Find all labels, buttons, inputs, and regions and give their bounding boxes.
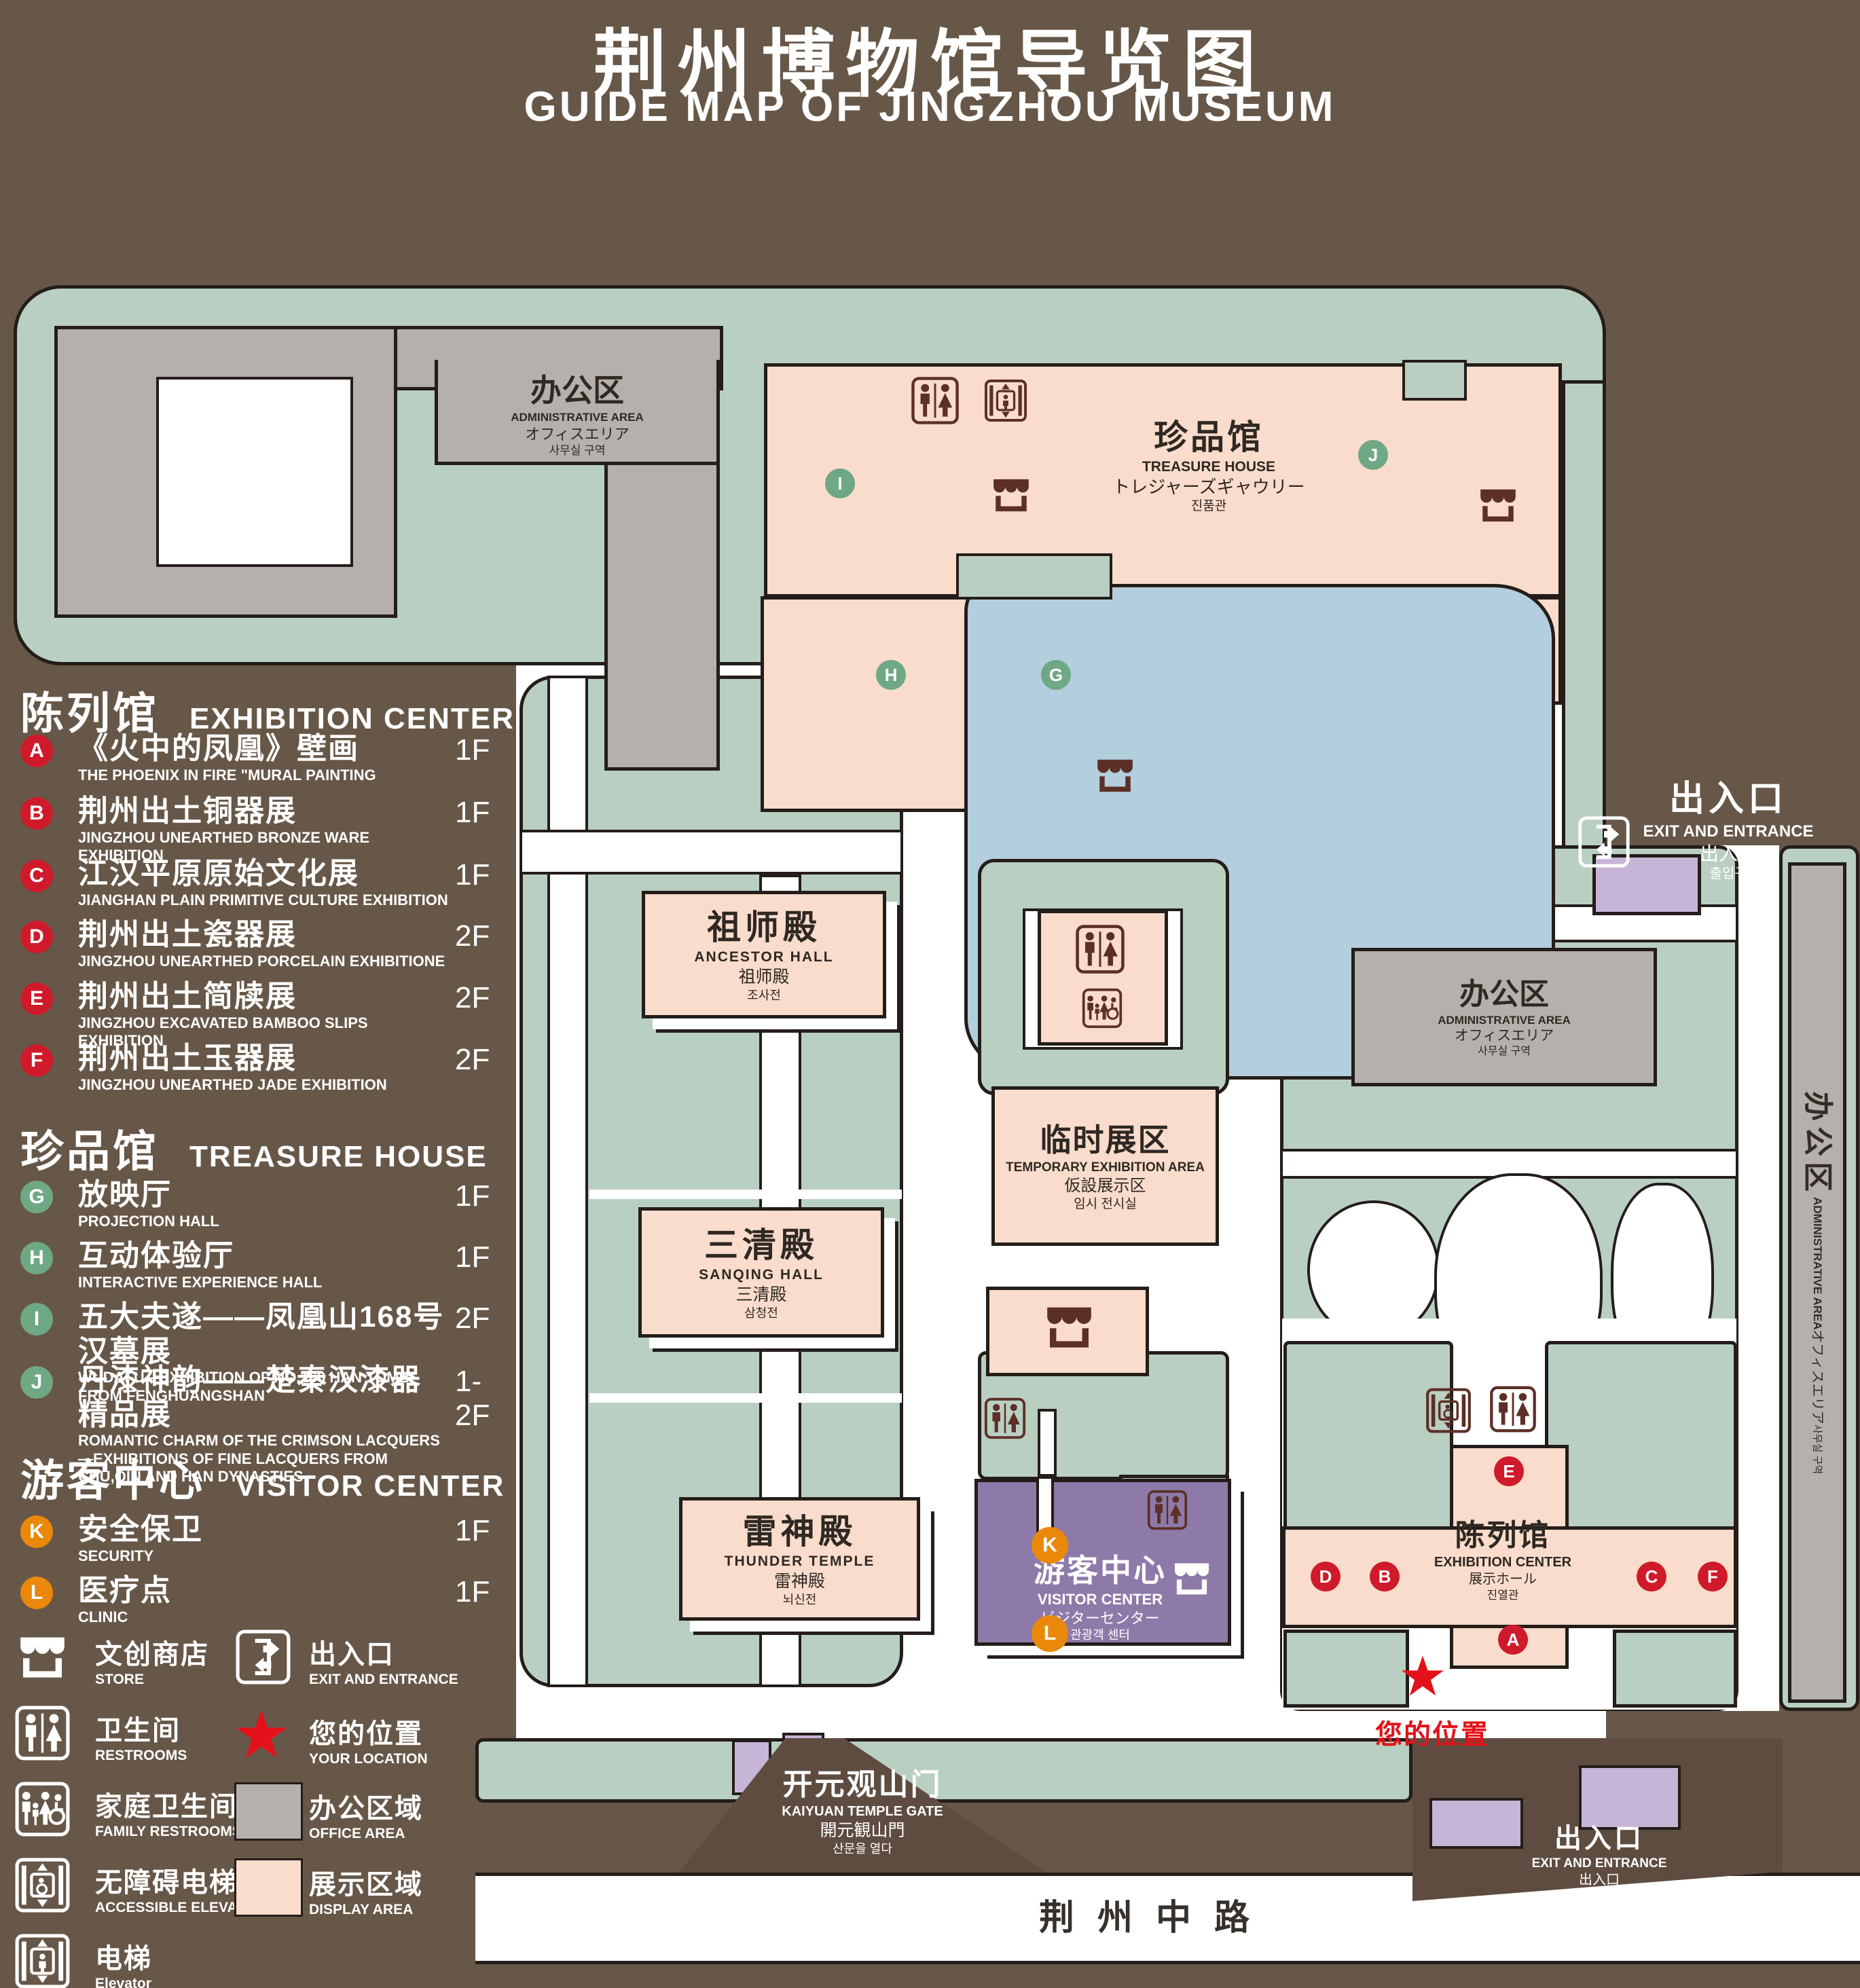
map-marker-C: C xyxy=(1637,1562,1666,1591)
map-marker-I: I xyxy=(825,468,855,498)
legend-icon-accessible-elevator: 无障碍电梯ACCESSIBLE ELEVATOR xyxy=(14,1856,71,1914)
building-thunder-temple: 雷神殿 THUNDER TEMPLE 雷神殿 뇌신전 xyxy=(679,1497,920,1621)
label-exhibition-center: 陈列馆 EXHIBITION CENTER 展示ホール 진열관 xyxy=(1391,1494,1615,1626)
map-marker-A: A xyxy=(1498,1625,1528,1655)
legend-section-treasure-house: 珍品馆 TREASURE HOUSE xyxy=(20,1117,488,1179)
exit-icon xyxy=(234,1628,292,1686)
green-block-exh-se xyxy=(1613,1630,1737,1708)
guide-map-canvas: 荆州博物馆导览图 GUIDE MAP OF JINGZHOU MUSEUM 办公… xyxy=(0,0,1860,1988)
legend-icon-display-area: 展示区域DISPLAY AREA xyxy=(234,1858,303,1917)
map-marker-H: H xyxy=(876,660,906,690)
legend-icon-exit: 出入口EXIT AND ENTRANCE xyxy=(234,1628,292,1686)
map-marker-E: E xyxy=(1494,1456,1524,1486)
restroom-icon xyxy=(1074,918,1126,980)
legend-icon-store: 文创商店STORE xyxy=(14,1628,71,1686)
exit-icon xyxy=(1577,815,1631,869)
label-your-location: 您的位置 xyxy=(1375,1712,1552,1752)
office-swatch xyxy=(234,1782,303,1841)
restroom-icon xyxy=(14,1704,71,1762)
map-marker-K: K xyxy=(1032,1527,1068,1564)
path-temples-gap2 xyxy=(589,1393,902,1403)
label-road: 荆州中路 xyxy=(1039,1889,1351,1940)
map-marker-G: G xyxy=(1041,660,1071,690)
label-admin-northwest: 办公区 ADMINISTRATIVE AREA オフィスエリア 사무실 구역 xyxy=(435,365,720,464)
restroom-icon xyxy=(983,1391,1027,1446)
restroom-icon xyxy=(910,370,960,431)
location-star-icon xyxy=(234,1708,289,1762)
label-treasure-house: 珍品馆 TREASURE HOUSE トレジャーズギャウリー 진품관 xyxy=(1087,407,1331,523)
map-marker-F: F xyxy=(1698,1562,1728,1591)
green-rect-lake-northwest xyxy=(956,553,1112,600)
building-ancestor-hall: 祖师殿 ANCESTOR HALL 祖师殿 조사전 xyxy=(642,891,886,1018)
legend-icon-elevator: 电梯Elevator xyxy=(14,1932,71,1988)
label-kaiyuan-gate: 开元观山门 KAIYUAN TEMPLE GATE 開元観山門 산문을 열다 xyxy=(706,1757,1019,1866)
location-star-icon xyxy=(1400,1654,1445,1699)
map-marker-D: D xyxy=(1311,1562,1341,1591)
entrance-block-south-east xyxy=(1579,1765,1681,1830)
elevator-icon xyxy=(983,370,1028,431)
elevator-icon xyxy=(14,1932,71,1988)
slot-visitor-north xyxy=(1038,1409,1057,1477)
label-admin-east: 办公区 ADMINISTRATIVE AREA オフィスエリア 사무실 구역 xyxy=(1351,951,1657,1084)
accessible-elevator-icon xyxy=(1425,1378,1472,1443)
legend-icon-office-area: 办公区域OFFICE AREA xyxy=(234,1782,303,1841)
store-icon xyxy=(1475,482,1521,528)
path-temples-gap1 xyxy=(589,1190,902,1199)
map-marker-B: B xyxy=(1370,1562,1400,1591)
store-icon xyxy=(14,1628,71,1686)
label-temporary-exhibition: 临时展区 TEMPORARY EXHIBITION AREA 仮設展示区 임시 … xyxy=(993,1092,1218,1241)
label-exit-northeast: 出入口 EXIT AND ENTRANCE 出入口 출입구 xyxy=(1616,779,1840,880)
green-block-exh-sw xyxy=(1283,1630,1409,1708)
page-subtitle: GUIDE MAP OF JINGZHOU MUSEUM xyxy=(0,83,1860,131)
legend-icon-your-location: 您的位置YOUR LOCATION xyxy=(234,1708,289,1762)
map-marker-L: L xyxy=(1032,1615,1068,1652)
legend-icon-restrooms: 卫生间RESTROOMS xyxy=(14,1704,71,1762)
legend-section-visitor-center: 游客中心 VISITOR CENTER xyxy=(20,1446,505,1509)
display-swatch xyxy=(234,1858,303,1917)
store-icon xyxy=(1169,1556,1214,1601)
path-temples-north xyxy=(519,830,903,875)
building-sanqing-hall: 三清殿 SANQING HALL 三清殿 삼청전 xyxy=(638,1207,884,1338)
accessible-elevator-icon xyxy=(14,1856,71,1914)
restroom-icon xyxy=(1146,1483,1188,1537)
label-exit-south: 出入口 EXIT AND ENTRANCE 出入口 출입구 xyxy=(1487,1826,1711,1898)
label-admin-strip-east: 办公区 ADMINISTRATIVE AREA オフィスエリア 사무실 구역 xyxy=(1788,862,1846,1703)
notch-treasure-top xyxy=(1402,360,1467,401)
building-admin-northwest-leg xyxy=(604,462,720,771)
restroom-icon xyxy=(1489,1377,1537,1441)
green-column-east-of-treasure xyxy=(1562,380,1606,849)
family-restroom-icon xyxy=(1081,986,1123,1031)
path-temples-west xyxy=(547,676,588,1687)
map-marker-J: J xyxy=(1358,440,1388,470)
store-icon xyxy=(1040,1298,1098,1356)
family-restroom-icon xyxy=(14,1780,71,1838)
legend-icon-family-restrooms: 家庭卫生间FAMILY RESTROOMS xyxy=(14,1780,71,1838)
courtyard-admin-inner xyxy=(156,377,353,567)
store-icon xyxy=(988,472,1034,518)
store-icon xyxy=(1092,752,1138,798)
